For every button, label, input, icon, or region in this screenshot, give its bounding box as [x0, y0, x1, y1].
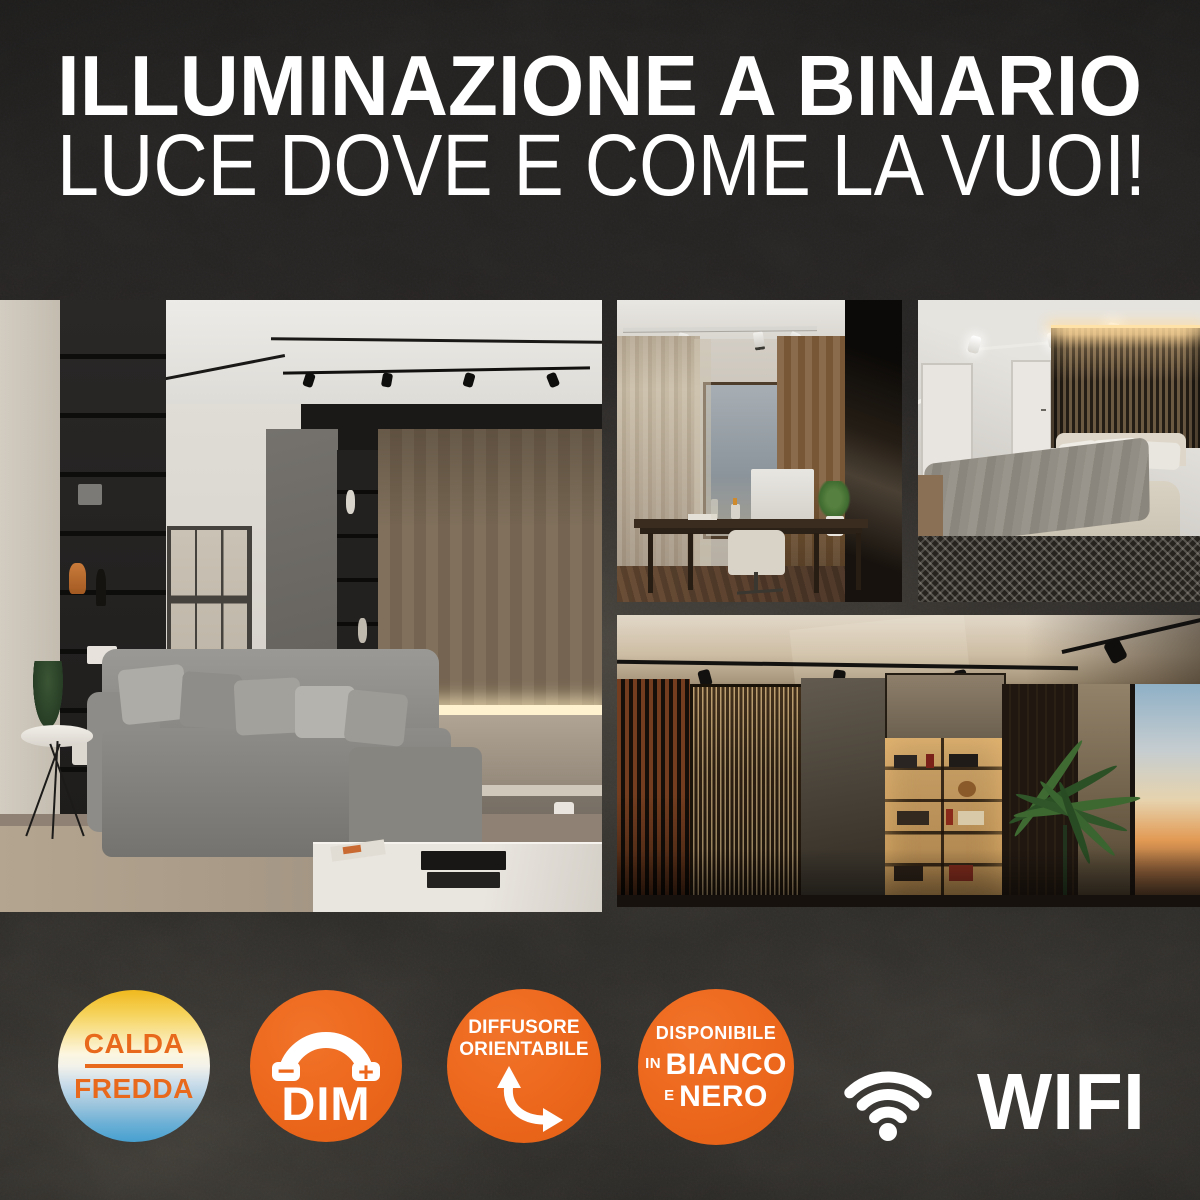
chair-back: [728, 530, 785, 575]
herringbone-rug: [918, 536, 1200, 602]
wifi-label: WIFI: [977, 1057, 1145, 1146]
glass-partition-upper: [885, 673, 1006, 741]
book-stack: [427, 872, 499, 888]
cushion: [179, 671, 243, 730]
curved-double-arrow-icon: [447, 1062, 601, 1138]
plant: [33, 661, 63, 728]
desk-top: [634, 519, 868, 528]
curtain: [617, 336, 700, 602]
cct-cold-label: FREDDA: [74, 1074, 194, 1103]
niche-bottle: [346, 490, 355, 514]
orientable-line2: ORIENTABILE: [459, 1039, 589, 1061]
wifi-icon: [850, 1077, 926, 1141]
monitor: [751, 469, 814, 520]
desk-leg: [814, 533, 819, 593]
marketing-banner: ILLUMINAZIONE A BINARIO LUCE DOVE E COME…: [0, 0, 1200, 1200]
desk-leg: [856, 533, 861, 590]
door-handle: [1041, 409, 1046, 411]
dark-wall: [845, 300, 902, 602]
plant-leaves: [817, 481, 851, 520]
cct-divider: [85, 1064, 183, 1068]
library-hallway-photo: [617, 615, 1200, 907]
book-row: [946, 809, 953, 825]
book-stack: [421, 851, 505, 871]
dim-label: DIM: [250, 1076, 402, 1131]
cushion: [344, 689, 409, 747]
variants-nero: NERO: [679, 1080, 768, 1113]
variants-line1: DISPONIBILE: [656, 1023, 777, 1044]
book-row: [926, 754, 934, 769]
wifi-feature: WIFI: [822, 1040, 1162, 1162]
shelf-bottle: [96, 569, 106, 606]
badge-cct-warm-cold: CALDA FREDDA: [58, 990, 210, 1142]
book-row: [894, 755, 917, 768]
wood-floor: [918, 475, 943, 541]
decor-plate: [958, 781, 975, 797]
book-row: [949, 754, 978, 767]
variants-in: IN: [645, 1055, 661, 1072]
variants-line3: E NERO: [664, 1082, 768, 1112]
shelf-vase: [69, 563, 86, 594]
headline-line2: LUCE DOVE E COME LA VUOI!: [57, 117, 1146, 214]
bedroom-photo: [918, 300, 1200, 602]
desk-leg: [648, 533, 653, 593]
badge-color-variants: DISPONIBILE IN BIANCO E NERO: [638, 989, 794, 1145]
variants-bianco: BIANCO: [666, 1048, 787, 1081]
office-photo: [617, 300, 902, 602]
hourglass: [711, 499, 718, 519]
variants-e: E: [664, 1087, 675, 1104]
led-glow: [1051, 325, 1200, 328]
orientable-line1: DIFFUSORE: [468, 1017, 580, 1039]
living-room-photo: [0, 300, 602, 912]
variants-line2: IN BIANCO: [645, 1050, 787, 1080]
shelf-glassware: [78, 484, 102, 505]
cushion: [118, 664, 190, 726]
badge-dim: − + DIM: [250, 990, 402, 1142]
badge-orientable-diffuser: DIFFUSORE ORIENTABILE: [447, 989, 601, 1143]
pencils: [733, 498, 737, 505]
cct-warm-label: CALDA: [84, 1029, 185, 1058]
desk-leg: [688, 533, 693, 590]
book-row: [958, 811, 984, 826]
pencil-cup: [731, 504, 740, 519]
track-spotlight: [753, 331, 765, 350]
niche-bottle: [358, 618, 367, 642]
book-row: [897, 811, 929, 826]
slat-accent-wall: [1051, 327, 1200, 448]
floor: [617, 895, 1200, 907]
headline: ILLUMINAZIONE A BINARIO LUCE DOVE E COME…: [0, 0, 1200, 230]
sheer-curtain: [694, 339, 711, 602]
cushion: [233, 678, 302, 736]
